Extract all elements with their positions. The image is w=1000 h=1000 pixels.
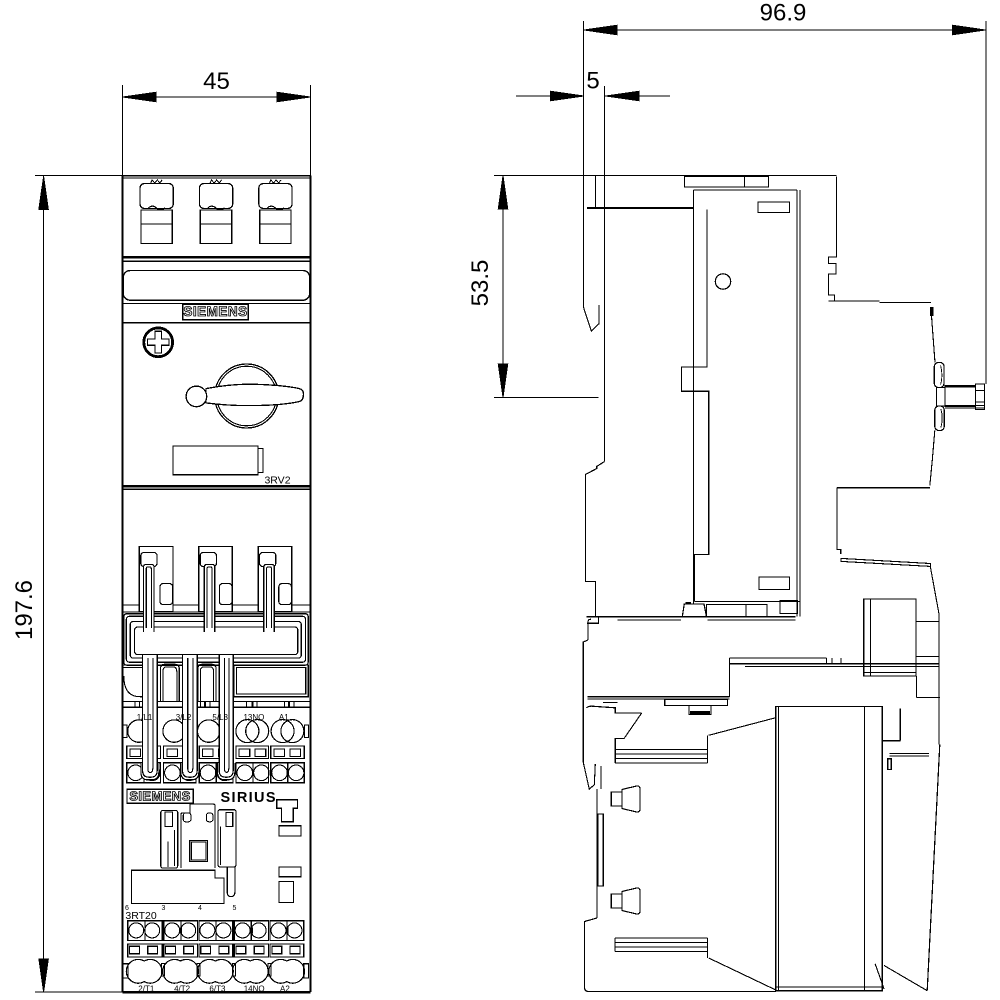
svg-text:3RV2: 3RV2 [264, 474, 290, 486]
svg-text:4/T2: 4/T2 [174, 984, 191, 993]
svg-text:197.6: 197.6 [11, 580, 38, 640]
svg-text:45: 45 [203, 68, 230, 95]
svg-text:SIEMENS: SIEMENS [129, 789, 190, 804]
svg-text:4: 4 [198, 905, 202, 912]
svg-text:5: 5 [233, 905, 237, 912]
svg-text:2/T1: 2/T1 [138, 984, 155, 993]
svg-text:6/T3: 6/T3 [209, 984, 226, 993]
svg-text:1/L1: 1/L1 [137, 713, 153, 722]
svg-text:13NO: 13NO [243, 713, 264, 722]
svg-text:A2: A2 [280, 984, 290, 993]
svg-text:96.9: 96.9 [760, 0, 807, 27]
svg-text:5: 5 [586, 68, 599, 95]
svg-text:5/L3: 5/L3 [212, 713, 228, 722]
svg-text:14NO: 14NO [244, 984, 265, 993]
svg-text:53.5: 53.5 [467, 260, 494, 307]
svg-text:SIEMENS: SIEMENS [183, 304, 247, 319]
svg-text:3/L2: 3/L2 [176, 713, 192, 722]
svg-text:3RT20: 3RT20 [125, 910, 156, 922]
svg-text:A1: A1 [279, 713, 289, 722]
svg-text:SIRIUS: SIRIUS [221, 790, 276, 806]
svg-text:3: 3 [161, 905, 165, 912]
